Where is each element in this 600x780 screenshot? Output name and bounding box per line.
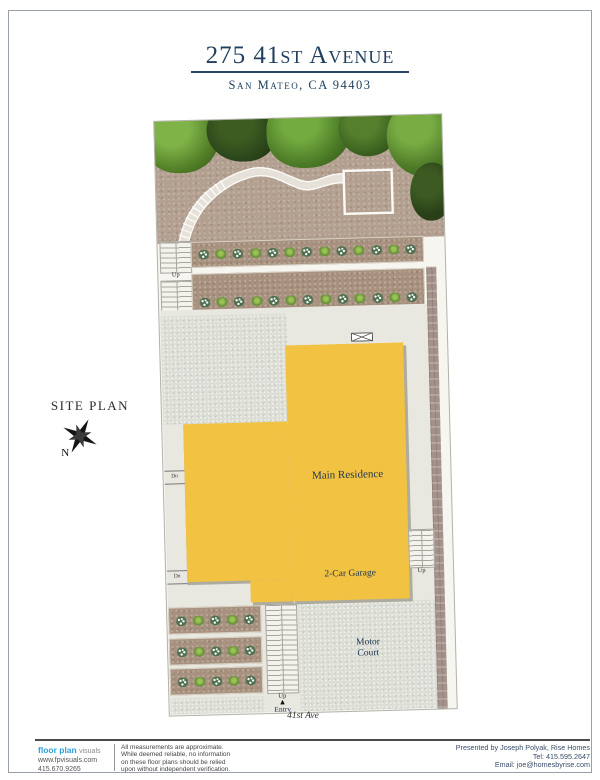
footer-divider (114, 744, 115, 771)
siteplan-label: SITE PLAN (28, 398, 152, 414)
header: 275 41st Avenue San Mateo, CA 94403 (0, 42, 600, 93)
upper-terrace (160, 313, 289, 424)
brand-logo-suffix: visuals (79, 748, 100, 755)
disclaimer-line: on these floor plans should be relied (121, 759, 230, 766)
plant-icon (285, 295, 297, 305)
plant-icon (193, 676, 205, 686)
plant-icon (243, 614, 255, 624)
motor-court-label: Motor Court (328, 636, 409, 660)
stairs-up-label: Up (409, 567, 434, 575)
plant-icon (353, 245, 365, 255)
planting-bed (190, 236, 424, 268)
plant-icon (387, 244, 399, 254)
plant-icon (176, 647, 188, 657)
plant-icon (244, 675, 256, 685)
brand-block: floor plan visuals www.fpvisuals.com 415… (38, 745, 112, 773)
plant-icon (336, 246, 348, 256)
plant-icon (250, 296, 262, 306)
compass-north-label: N (61, 447, 69, 458)
entry-stairs (265, 603, 299, 694)
stairs-up-label: Up (160, 271, 191, 279)
motor-court-line2: Court (328, 647, 408, 660)
presented-email: Email: joe@homesbyrise.com (340, 761, 590, 770)
footer: floor plan visuals www.fpvisuals.com 415… (0, 744, 600, 772)
plant-icon (405, 244, 417, 254)
path-terminal-terrace (344, 170, 393, 214)
site-plan: Up Up Main Residence 2-Car Garage Dn Dn … (153, 113, 458, 716)
plant-icon (268, 296, 280, 306)
plant-icon (302, 295, 314, 305)
plant-icon (389, 292, 401, 302)
compass-rose-icon: N (58, 414, 102, 458)
plant-icon (318, 246, 330, 256)
planting-bed (168, 605, 262, 634)
residence-left-wing (183, 421, 291, 582)
right-stairs (408, 529, 435, 569)
residence-connector (250, 579, 292, 602)
footer-rule (35, 739, 590, 741)
disclaimer-line: upon without independent verification. (121, 766, 230, 773)
brand-logo: floor plan (38, 745, 77, 755)
page-subtitle: San Mateo, CA 94403 (0, 78, 600, 93)
plant-icon (197, 249, 209, 259)
plant-icon (371, 293, 383, 303)
presented-block: Presented by Joseph Polyak, Rise Homes T… (340, 744, 590, 770)
plant-icon (175, 616, 187, 626)
street-label: 41st Ave (263, 711, 343, 721)
plant-icon (192, 615, 204, 625)
plant-icon (193, 646, 205, 656)
plant-icon (210, 646, 222, 656)
tree-icon (409, 162, 453, 221)
disclaimer-line: All measurements are approximate. (121, 744, 230, 751)
stairs-down-label: Dn (167, 570, 187, 585)
plant-icon (210, 676, 222, 686)
disclaimer-line: While deemed reliable, no information (121, 751, 230, 758)
plant-icon (320, 294, 332, 304)
title-underline (191, 71, 409, 73)
plant-icon (209, 615, 221, 625)
skylight-icon (351, 332, 373, 342)
plant-icon (249, 248, 261, 258)
lower-walk (170, 696, 264, 714)
plant-icon (337, 294, 349, 304)
plant-icon (370, 245, 382, 255)
plant-icon (266, 248, 278, 258)
plant-icon (354, 293, 366, 303)
disclaimer: All measurements are approximate. While … (121, 744, 230, 773)
plant-icon (227, 675, 239, 685)
plant-icon (215, 249, 227, 259)
plant-icon (216, 297, 228, 307)
plant-icon (227, 645, 239, 655)
planting-bed (170, 666, 264, 695)
page: 275 41st Avenue San Mateo, CA 94403 SITE… (0, 0, 600, 780)
plant-icon (284, 247, 296, 257)
planting-bed (169, 636, 263, 665)
brand-website: www.fpvisuals.com (38, 757, 112, 764)
plant-icon (226, 614, 238, 624)
brand-phone: 415.670.9265 (38, 766, 112, 773)
plant-icon (244, 645, 256, 655)
plant-icon (176, 677, 188, 687)
stairs-down-label: Dn (164, 470, 184, 485)
plant-icon (232, 249, 244, 259)
plant-icon (301, 247, 313, 257)
plant-icon (406, 292, 418, 302)
left-stairs-upper (159, 241, 192, 274)
plant-icon (199, 297, 211, 307)
page-title: 275 41st Avenue (0, 42, 600, 70)
plant-icon (233, 297, 245, 307)
